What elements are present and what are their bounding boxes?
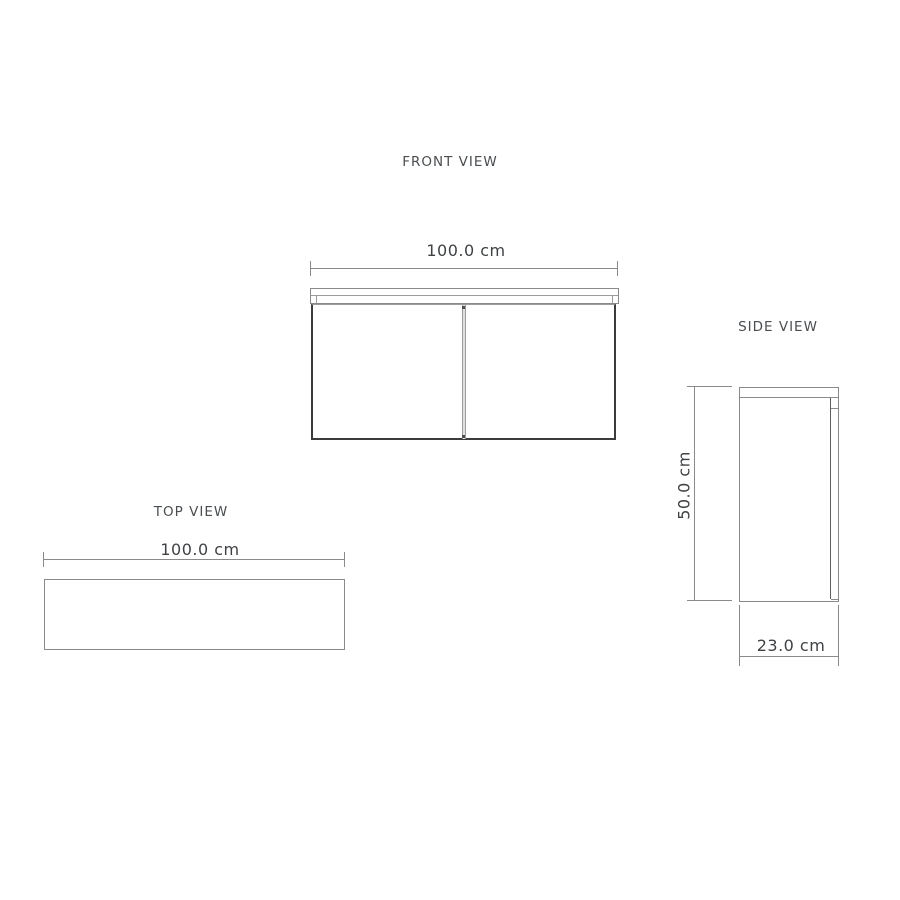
front-width-dim-line <box>310 268 618 269</box>
side-door-bottom-line <box>831 599 839 600</box>
side-depth-dim-tick-left <box>739 646 740 666</box>
side-height-dim-line <box>694 386 695 601</box>
front-width-dim-tick-left <box>310 261 311 276</box>
side-height-dim-label: 50.0 cm <box>675 451 694 521</box>
side-view-title: SIDE VIEW <box>698 319 858 335</box>
side-height-dim-ext-top <box>687 386 732 387</box>
front-countertop-outline <box>310 288 619 304</box>
top-view-outline <box>44 579 345 650</box>
front-carcass-notch-right <box>612 296 613 303</box>
technical-drawing-canvas: FRONT VIEW 100.0 cm SIDE VIEW 50.0 cm 23… <box>0 0 900 900</box>
front-width-dim-label: 100.0 cm <box>312 241 620 260</box>
front-door-divider <box>462 305 466 439</box>
top-width-dim-tick-right <box>344 552 345 567</box>
front-width-dim-tick-right <box>617 261 618 276</box>
top-view-title: TOP VIEW <box>111 504 271 520</box>
side-carcass-outline <box>739 397 839 602</box>
front-divider-dot-bottom <box>462 435 465 438</box>
front-view-title: FRONT VIEW <box>370 154 530 170</box>
top-width-dim-tick-left <box>43 552 44 567</box>
top-width-dim-line <box>43 559 345 560</box>
side-door-top-tick <box>831 408 839 409</box>
side-height-dim-ext-bottom <box>687 600 732 601</box>
top-width-dim-label: 100.0 cm <box>50 540 350 559</box>
side-depth-dim-line <box>739 656 839 657</box>
front-countertop-edge-line <box>311 295 618 296</box>
front-carcass-notch-left <box>316 296 317 303</box>
front-divider-dot-top <box>462 306 465 309</box>
side-depth-dim-label: 23.0 cm <box>741 636 841 655</box>
side-door-edge-line <box>830 398 831 599</box>
